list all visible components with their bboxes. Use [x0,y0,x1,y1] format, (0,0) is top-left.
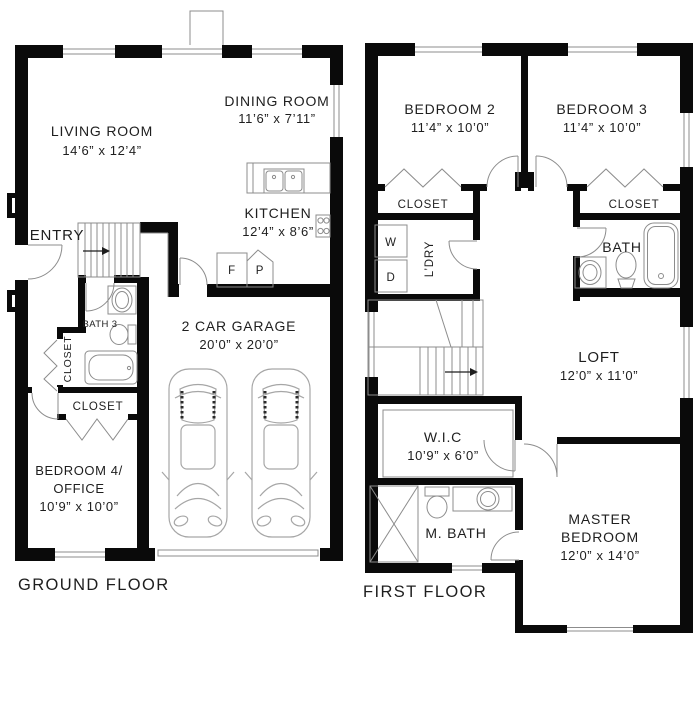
mbath-door-opening [515,530,523,560]
sink-icon [453,487,512,511]
bedroom2-door-opening [487,184,515,191]
wic-dims: 10’9” x 6’0” [407,448,479,463]
dining-room-dims: 11’6” x 7’11” [238,111,315,126]
garage-west-wall [137,277,149,561]
laundry-label: L’DRY [424,241,436,277]
kitchen-sink-icon [264,169,304,193]
garage-entry-opening [179,284,207,297]
mbath-label: M. BATH [425,525,486,541]
master-dims: 12’0” x 14’0” [560,548,639,563]
closet-bifold-doors [66,419,128,440]
mbath-north-wall [365,478,523,485]
bedroom-divider-wall [521,56,528,172]
car-icon [162,369,234,537]
bath-fixtures [575,223,678,288]
toilet-icon [128,325,136,344]
ground-floor-caption: GROUND FLOOR [18,576,170,594]
bedroom4-label-line2: OFFICE [53,481,104,496]
living-room-label: LIVING ROOM [51,123,153,139]
bath-south-wall [573,288,693,297]
living-room-dims: 14’6” x 12’4” [62,143,141,158]
stove-icon [316,215,330,237]
bedroom3-dims: 11’4” x 10’0” [563,120,641,135]
closet2-label: CLOSET [398,199,449,211]
bedroom3-door-opening [534,184,567,191]
bath3-door-opening [86,275,114,283]
floor-plan-page: LIVING ROOM 14’6” x 12’4” DINING ROOM 11… [0,0,700,708]
bath-door-opening [573,227,580,256]
bathtub-icon [85,351,137,384]
master-label-line2: BEDROOM [561,529,639,545]
stairs [368,300,483,395]
kitchen-label: KITCHEN [244,205,311,221]
first-top-wall [365,43,693,56]
first-floor-plan: BEDROOM 2 11’4” x 10’0” BEDROOM 3 11’4” … [363,43,693,633]
closet-bifold-doors [44,340,57,391]
first-left-wall [365,43,378,573]
laundry-door-opening [473,240,480,269]
hall-kitchen-wall [168,222,178,297]
kitchen-counter [247,163,330,193]
bedroom4-label-line1: BEDROOM 4/ [35,463,123,478]
stair-direction-arrow [470,368,478,376]
entry-door-opening [15,245,28,280]
loft-dims: 12’0” x 11’0” [560,368,638,383]
bath3-fixtures [85,286,137,384]
ground-left-wall [15,45,28,561]
car-icon [245,369,317,537]
wic-north-wall [365,396,522,404]
toilet-icon [616,252,636,278]
bedroom2-label: BEDROOM 2 [404,101,495,117]
wic-east-wall [515,404,522,440]
kitchen-dims: 12’4” x 8’6” [242,224,314,239]
first-floor-caption: FIRST FLOOR [363,583,487,601]
dining-room-label: DINING ROOM [224,93,329,109]
garage-dims: 20’0” x 20’0” [199,337,278,352]
dryer-label: D [386,272,395,284]
hall-closet-label: CLOSET [62,336,74,383]
bath-label: BATH [602,239,642,255]
toilet-icon [425,487,449,496]
closet3-label: CLOSET [609,199,660,211]
loft-label: LOFT [578,349,620,366]
closet2-south-wall [365,213,480,220]
bedroom4-closet-label: CLOSET [73,401,124,413]
fridge-label: F [228,265,236,277]
bedroom3-label: BEDROOM 3 [556,101,647,117]
washer-label: W [385,237,397,249]
garage-label: 2 CAR GARAGE [182,318,297,334]
pantry-label: P [256,265,264,277]
bedroom4-dims: 10’9” x 10’0” [39,499,118,514]
entry-label: ENTRY [30,227,85,244]
mbath-south-wall [365,563,523,573]
floor-plan-canvas: LIVING ROOM 14’6” x 12’4” DINING ROOM 11… [0,0,700,708]
bath3-label: BATH 3 [83,319,118,330]
ground-floor-plan: LIVING ROOM 14’6” x 12’4” DINING ROOM 11… [10,11,344,594]
closet3-south-wall [573,213,693,220]
master-north-wall [557,437,680,444]
wic-label: W.I.C [424,429,462,445]
bedroom2-dims: 11’4” x 10’0” [411,120,489,135]
master-label-line1: MASTER [568,511,631,527]
mbath-fixtures [370,486,512,562]
